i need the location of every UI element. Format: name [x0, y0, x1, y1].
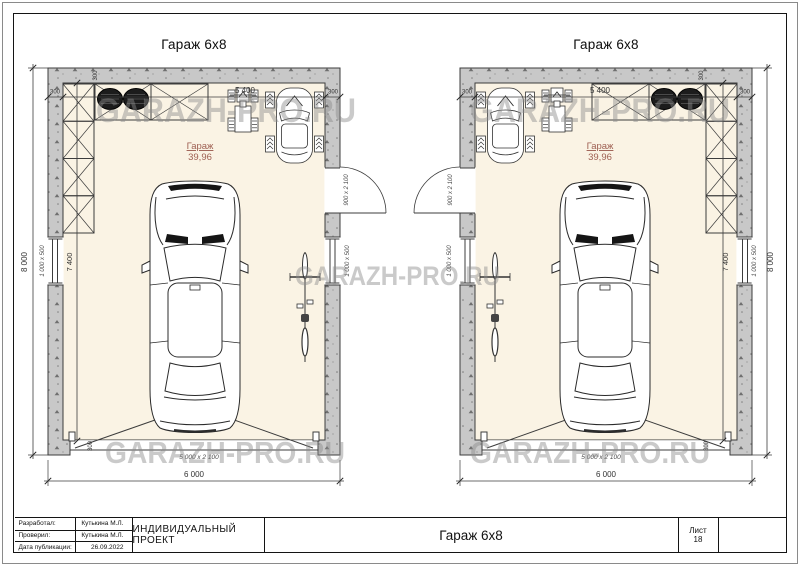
project-type-cell: ИНДИВИДУАЛЬНЫЙ ПРОЕКТ — [132, 518, 264, 553]
dim-label-8000: 8 000 — [20, 251, 29, 272]
title-block-empty-cell — [718, 518, 786, 553]
sheet-number: 18 — [694, 535, 703, 544]
car-top-view — [552, 181, 658, 433]
document-title-cell: Гараж 6x8 — [264, 518, 678, 553]
door-opening — [324, 168, 340, 214]
dim-label-7400: 7 400 — [721, 253, 730, 272]
car-top-view — [142, 181, 248, 433]
dim-label-300: 300 — [50, 90, 61, 96]
watermark: GARAZH-PRO.RU — [470, 435, 710, 470]
window-opening — [47, 237, 63, 286]
dim-label-300: 300 — [699, 70, 705, 81]
dim-label-7400: 7 400 — [65, 253, 74, 272]
dim-label-300: 300 — [93, 70, 99, 81]
publish-date-value: 26.09.2022 — [91, 544, 132, 551]
gate-post — [69, 432, 75, 441]
room-area-label: 39,96 — [188, 152, 212, 163]
door-opening — [459, 168, 475, 214]
title-block-row: Разработал: Кутькина М.Л. — [15, 518, 132, 530]
dim-label-300: 300 — [740, 90, 751, 96]
title-block: Разработал: Кутькина М.Л. Проверил: Куть… — [15, 517, 786, 553]
window-size-label: 1 000 x 500 — [40, 245, 46, 277]
publish-date-label: Дата публикации: — [15, 544, 72, 551]
dim-label-6000: 6 000 — [184, 470, 205, 479]
watermark: GARAZH-PRO.RU — [105, 435, 345, 470]
sheet-label: Лист — [689, 526, 706, 535]
gate-post — [725, 432, 731, 441]
garage-floor-plan-drawing: Гараж39,968 0006 0005 4003003007 4003003… — [0, 0, 800, 566]
watermark: GARAZH-PRO.RU — [295, 261, 500, 291]
title-block-divider — [75, 518, 76, 553]
sheet-number-cell: Лист 18 — [678, 518, 718, 553]
room-name-label: Гараж — [187, 141, 214, 152]
room-area-label: 39,96 — [588, 152, 612, 163]
checked-by-label: Проверил: — [15, 532, 51, 539]
window-size-label: 1 000 x 500 — [752, 245, 758, 277]
dim-label-6000: 6 000 — [596, 470, 617, 479]
door-size-label: 900 x 2 100 — [344, 174, 350, 206]
developed-by-value: Кутькина М.Л. — [81, 520, 131, 527]
window-opening — [736, 237, 752, 286]
title-block-signature-rows: Разработал: Кутькина М.Л. Проверил: Куть… — [15, 518, 132, 553]
watermark: GARAZH-PRO.RU — [96, 92, 356, 130]
dim-label-300: 300 — [88, 440, 94, 451]
title-block-row: Дата публикации: 26.09.2022 — [15, 541, 132, 553]
developed-by-label: Разработал: — [15, 520, 56, 527]
door-size-label: 900 x 2 100 — [448, 174, 454, 206]
title-block-row: Проверил: Кутькина М.Л. — [15, 530, 132, 542]
room-name-label: Гараж — [587, 141, 614, 152]
checked-by-value: Кутькина М.Л. — [81, 532, 131, 539]
dim-label-8000: 8 000 — [766, 251, 775, 272]
watermark: GARAZH-PRO.RU — [470, 92, 730, 130]
